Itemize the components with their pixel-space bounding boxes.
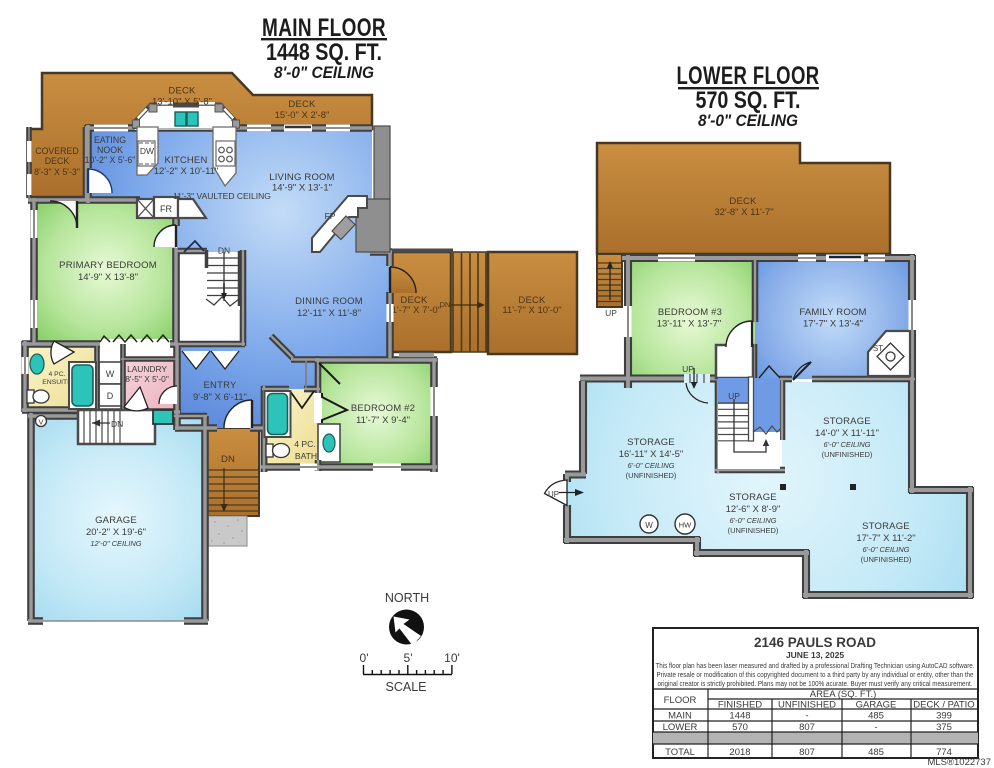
svg-text:375: 375	[936, 722, 952, 733]
svg-text:FP: FP	[325, 211, 336, 221]
svg-text:W: W	[645, 521, 653, 530]
svg-text:-: -	[874, 722, 877, 733]
svg-text:13'-11" X 13'-7": 13'-11" X 13'-7"	[657, 319, 722, 330]
svg-text:AREA (SQ. FT.): AREA (SQ. FT.)	[810, 689, 877, 700]
svg-text:2018: 2018	[729, 747, 750, 758]
svg-text:DECK: DECK	[288, 99, 316, 110]
svg-text:ST: ST	[873, 344, 883, 353]
svg-text:12'-0" CEILING: 12'-0" CEILING	[90, 539, 141, 548]
svg-text:12'-11" X 11'-8": 12'-11" X 11'-8"	[297, 308, 361, 319]
svg-text:UNFINISHED: UNFINISHED	[778, 700, 836, 711]
svg-text:DINING ROOM: DINING ROOM	[295, 296, 363, 307]
svg-text:12'-2" X 10'-11": 12'-2" X 10'-11"	[154, 166, 219, 177]
svg-text:V: V	[38, 418, 43, 427]
svg-text:4 PC.: 4 PC.	[49, 371, 66, 378]
svg-text:807: 807	[799, 722, 815, 733]
svg-text:0': 0'	[360, 651, 369, 665]
svg-text:FR: FR	[160, 204, 172, 214]
svg-text:DECK / PATIO: DECK / PATIO	[913, 700, 974, 711]
svg-text:LIVING ROOM: LIVING ROOM	[269, 172, 335, 183]
svg-text:ENSUITE: ENSUITE	[42, 379, 72, 386]
svg-text:807: 807	[799, 747, 815, 758]
svg-text:5': 5'	[404, 651, 413, 665]
svg-text:FINISHED: FINISHED	[718, 700, 762, 711]
svg-text:11'-7" X 10'-0": 11'-7" X 10'-0"	[502, 305, 561, 316]
svg-text:UP: UP	[605, 308, 617, 318]
svg-text:(UNFINISHED): (UNFINISHED)	[728, 526, 779, 535]
svg-text:1448: 1448	[729, 711, 750, 722]
svg-text:8'-5" X 5'-0": 8'-5" X 5'-0"	[125, 374, 169, 384]
svg-text:STORAGE: STORAGE	[862, 521, 910, 532]
svg-text:PRIMARY BEDROOM: PRIMARY BEDROOM	[59, 260, 157, 271]
svg-text:SCALE: SCALE	[386, 680, 427, 694]
svg-text:1448 SQ. FT.: 1448 SQ. FT.	[266, 39, 382, 66]
svg-text:DECK: DECK	[168, 86, 196, 97]
svg-text:6'-0" CEILING: 6'-0" CEILING	[627, 461, 674, 470]
svg-text:LAUNDRY: LAUNDRY	[127, 364, 167, 374]
svg-text:UP: UP	[548, 490, 559, 499]
svg-text:570 SQ. FT.: 570 SQ. FT.	[696, 87, 801, 114]
svg-text:399: 399	[936, 711, 952, 722]
svg-text:This floor plan has been laser: This floor plan has been laser measured …	[656, 663, 975, 670]
svg-text:9'-8" X 6'-11": 9'-8" X 6'-11"	[193, 392, 247, 403]
svg-text:STORAGE: STORAGE	[823, 416, 871, 427]
svg-text:STORAGE: STORAGE	[729, 492, 777, 503]
svg-text:8'-0" CEILING: 8'-0" CEILING	[274, 63, 374, 82]
svg-text:LOWER FLOOR: LOWER FLOOR	[677, 62, 820, 90]
svg-text:(UNFINISHED): (UNFINISHED)	[861, 555, 912, 564]
svg-text:8'-0" CEILING: 8'-0" CEILING	[698, 111, 798, 130]
svg-text:(UNFINISHED): (UNFINISHED)	[822, 450, 873, 459]
svg-text:13'-10" X 5'-8": 13'-10" X 5'-8"	[152, 97, 212, 108]
svg-text:11'-7" X 7'-0": 11'-7" X 7'-0"	[387, 305, 441, 316]
svg-text:6'-0" CEILING: 6'-0" CEILING	[862, 545, 909, 554]
svg-text:DN: DN	[440, 300, 451, 309]
svg-text:12'-6" X 8'-9": 12'-6" X 8'-9"	[726, 504, 781, 515]
svg-text:LOWER: LOWER	[663, 722, 698, 733]
svg-text:FAMILY ROOM: FAMILY ROOM	[799, 307, 866, 318]
svg-text:MLS®1022737: MLS®1022737	[927, 757, 991, 768]
svg-text:(UNFINISHED): (UNFINISHED)	[626, 471, 677, 480]
svg-text:GARAGE: GARAGE	[856, 700, 897, 711]
svg-text:DN: DN	[218, 246, 230, 256]
svg-text:DN: DN	[221, 454, 235, 465]
svg-text:11'-7" X 9'-4": 11'-7" X 9'-4"	[356, 415, 410, 426]
svg-text:14'-0" X 11'-11": 14'-0" X 11'-11"	[815, 428, 879, 439]
svg-text:D: D	[107, 391, 114, 401]
svg-text:14'-9" X 13'-8": 14'-9" X 13'-8"	[78, 272, 138, 283]
svg-text:4 PC.: 4 PC.	[294, 439, 316, 449]
svg-text:MAIN FLOOR: MAIN FLOOR	[262, 14, 386, 42]
svg-text:485: 485	[868, 711, 884, 722]
svg-text:570: 570	[732, 722, 748, 733]
svg-text:ENTRY: ENTRY	[203, 380, 236, 391]
svg-text:COVERED: COVERED	[35, 146, 79, 156]
svg-text:BEDROOM #3: BEDROOM #3	[658, 307, 722, 318]
svg-text:BATH: BATH	[295, 451, 317, 461]
svg-text:FLOOR: FLOOR	[664, 695, 697, 706]
svg-text:485: 485	[868, 747, 884, 758]
svg-text:DECK: DECK	[729, 196, 757, 207]
svg-text:original creator is strictly p: original creator is strictly prohibited.…	[658, 681, 973, 688]
svg-text:8'-3" X 5'-3": 8'-3" X 5'-3"	[34, 167, 80, 177]
svg-text:6'-0" CEILING: 6'-0" CEILING	[729, 516, 776, 525]
svg-text:UP: UP	[682, 364, 694, 374]
svg-text:16'-11" X 14'-5": 16'-11" X 14'-5"	[619, 449, 684, 460]
svg-text:KITCHEN: KITCHEN	[164, 155, 207, 166]
svg-text:-: -	[805, 711, 808, 722]
svg-text:17'-7" X 11'-2": 17'-7" X 11'-2"	[856, 533, 915, 544]
svg-text:17'-7" X 13'-4": 17'-7" X 13'-4"	[803, 319, 863, 330]
svg-text:DW: DW	[140, 146, 154, 156]
svg-text:15'-0" X 2'-8": 15'-0" X 2'-8"	[275, 110, 330, 121]
svg-text:NORTH: NORTH	[385, 591, 429, 605]
svg-text:2146 PAULS ROAD: 2146 PAULS ROAD	[754, 635, 876, 650]
svg-text:BEDROOM #2: BEDROOM #2	[351, 403, 415, 414]
svg-text:EATING: EATING	[94, 135, 126, 145]
svg-text:W: W	[106, 369, 115, 379]
svg-text:20'-2" X 19'-6": 20'-2" X 19'-6"	[86, 527, 146, 538]
svg-text:10': 10'	[444, 651, 460, 665]
svg-text:11'-3" VAULTED CEILING: 11'-3" VAULTED CEILING	[173, 191, 271, 201]
svg-text:STORAGE: STORAGE	[627, 437, 675, 448]
svg-text:DN: DN	[111, 419, 123, 429]
svg-text:GARAGE: GARAGE	[95, 515, 137, 526]
svg-text:Private resale or modification: Private resale or modification of this c…	[657, 672, 974, 679]
svg-text:DECK: DECK	[45, 156, 70, 166]
svg-text:UP: UP	[728, 391, 740, 401]
svg-text:6'-0" CEILING: 6'-0" CEILING	[823, 440, 870, 449]
svg-text:10'-2" X 5'-6": 10'-2" X 5'-6"	[85, 155, 136, 165]
svg-text:TOTAL: TOTAL	[665, 747, 695, 758]
svg-text:JUNE 13, 2025: JUNE 13, 2025	[786, 650, 844, 660]
svg-text:MAIN: MAIN	[668, 711, 692, 722]
svg-text:32'-8" X 11'-7": 32'-8" X 11'-7"	[714, 207, 773, 218]
svg-text:14'-9" X 13'-1": 14'-9" X 13'-1"	[272, 183, 332, 194]
svg-text:HW: HW	[679, 521, 692, 530]
svg-text:NOOK: NOOK	[97, 145, 123, 155]
